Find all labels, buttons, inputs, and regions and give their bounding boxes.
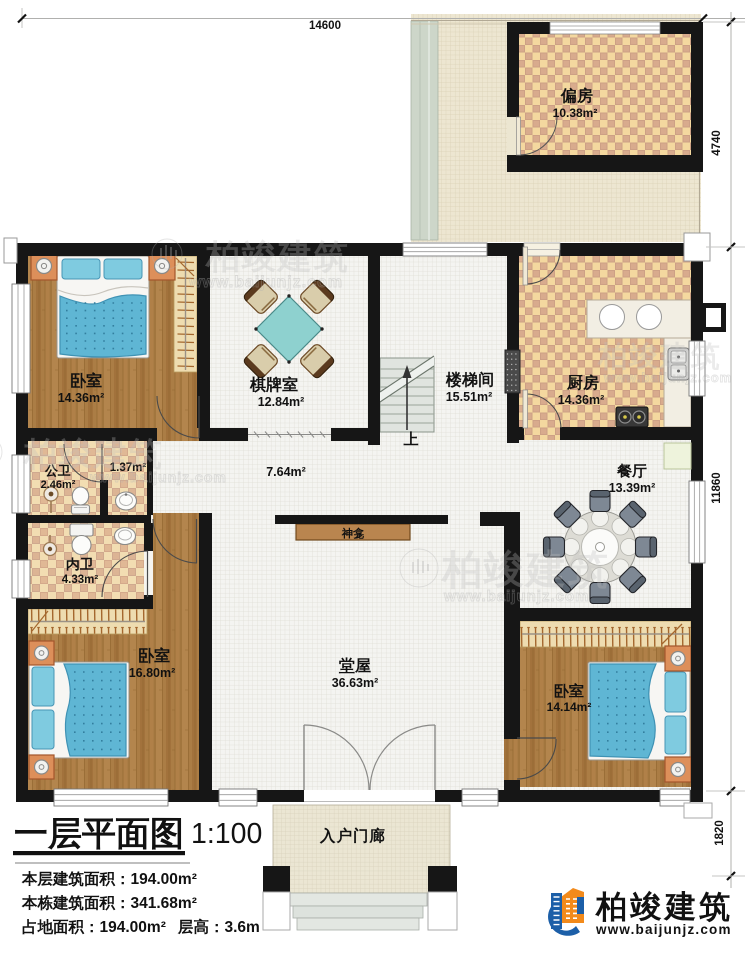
svg-text:16.80m²: 16.80m² (129, 666, 176, 680)
svg-text:柏竣建筑: 柏竣建筑 (440, 548, 610, 592)
svg-text:1:100: 1:100 (191, 818, 262, 850)
svg-text:11860: 11860 (711, 472, 723, 503)
svg-text:14.36m²: 14.36m² (58, 391, 105, 405)
svg-text:本栋建筑面积：341.68m²: 本栋建筑面积：341.68m² (21, 894, 197, 912)
svg-text:1820: 1820 (714, 820, 726, 846)
svg-text:入户门廊: 入户门廊 (319, 827, 386, 845)
svg-text:内卫: 内卫 (66, 556, 95, 572)
svg-text:堂屋: 堂屋 (339, 657, 371, 675)
svg-text:本层建筑面积：194.00m²: 本层建筑面积：194.00m² (21, 870, 197, 888)
svg-text:www.baijunjz.com: www.baijunjz.com (89, 469, 227, 485)
svg-text:占地面积：194.00m²: 占地面积：194.00m² (22, 918, 166, 936)
svg-text:15.51m²: 15.51m² (446, 390, 493, 404)
svg-text:厨房: 厨房 (566, 373, 600, 392)
svg-text:柏竣建筑: 柏竣建筑 (204, 238, 350, 276)
svg-text:楼梯间: 楼梯间 (445, 371, 494, 389)
svg-text:14.36m²: 14.36m² (558, 393, 605, 407)
svg-text:13.39m²: 13.39m² (609, 481, 656, 495)
svg-text:4740: 4740 (711, 130, 723, 156)
svg-text:www.baijunjz.com: www.baijunjz.com (595, 922, 732, 937)
svg-text:柏竣建筑: 柏竣建筑 (594, 889, 734, 924)
svg-text:www.baijunjz.com: www.baijunjz.com (443, 588, 589, 605)
svg-text:www.baijunjz.com: www.baijunjz.com (188, 274, 343, 291)
svg-text:餐厅: 餐厅 (616, 462, 648, 480)
svg-text:7.64m²: 7.64m² (266, 465, 306, 479)
svg-text:4.33m²: 4.33m² (62, 574, 99, 586)
svg-text:36.63m²: 36.63m² (332, 676, 379, 690)
svg-text:www.baijunjz.com: www.baijunjz.com (603, 370, 732, 385)
svg-text:层高：3.6m: 层高：3.6m (177, 918, 260, 936)
svg-text:10.38m²: 10.38m² (553, 106, 598, 120)
svg-text:14.14m²: 14.14m² (547, 700, 592, 714)
svg-text:卧室: 卧室 (138, 646, 170, 665)
svg-text:上: 上 (404, 431, 419, 448)
svg-text:偏房: 偏房 (560, 86, 594, 105)
svg-text:神龛: 神龛 (341, 527, 365, 540)
svg-text:14600: 14600 (309, 20, 341, 32)
svg-text:棋牌室: 棋牌室 (249, 375, 298, 394)
svg-text:2.46m²: 2.46m² (41, 479, 76, 491)
svg-text:柏竣建筑: 柏竣建筑 (597, 341, 722, 373)
svg-text:柏竣建筑: 柏竣建筑 (22, 435, 164, 472)
svg-text:卧室: 卧室 (554, 682, 584, 700)
svg-text:一层平面图: 一层平面图 (14, 815, 184, 853)
svg-text:卧室: 卧室 (70, 371, 102, 390)
svg-text:12.84m²: 12.84m² (258, 395, 305, 409)
